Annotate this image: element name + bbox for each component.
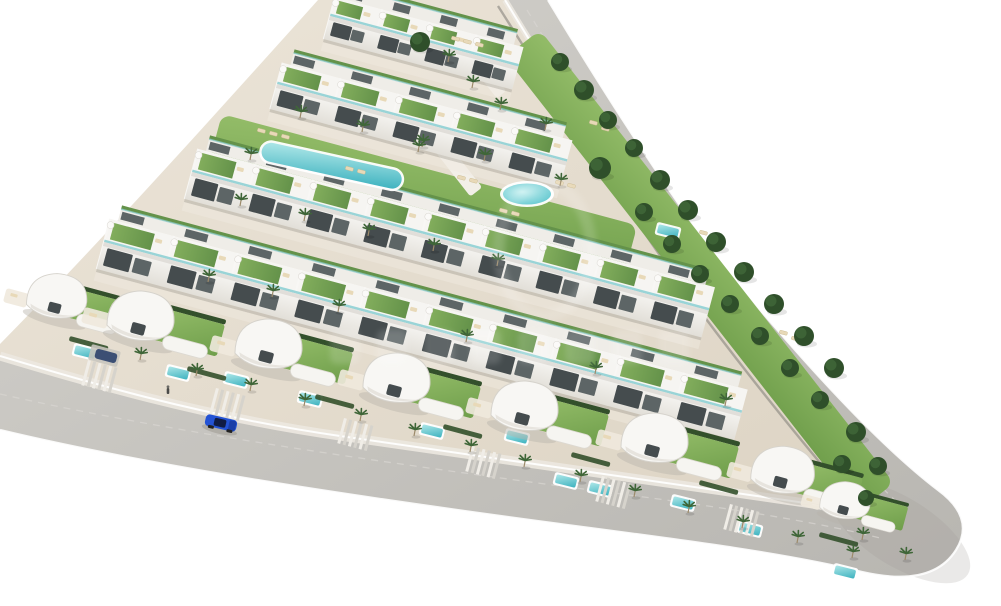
tree-highlight [766,296,777,307]
development-aerial-render: Aerial 3D architectural render of a tria… [0,0,1001,606]
tree-highlight [576,82,587,93]
tree-highlight [552,54,562,64]
tree-highlight [636,204,646,214]
watermark-letterform [565,330,595,364]
palm-shadow [632,496,641,499]
watermark-letterform [659,330,689,364]
tree-highlight [848,424,859,435]
villa-terrace [3,288,29,308]
palm-shadow [336,311,345,314]
tree-highlight [782,360,792,370]
palm-shadow [686,512,695,515]
palm-shadow [903,559,912,562]
palm-shadow [298,117,307,120]
tree-highlight [680,202,691,213]
palm-shadow [578,481,587,484]
tree-highlight [664,236,674,246]
tree-highlight [722,296,732,306]
tree-highlight [752,328,762,338]
palm-shadow [358,420,367,423]
tree-highlight [708,234,719,245]
palm-shadow [860,539,869,542]
pedestrian-head [167,385,170,388]
palm-shadow [302,220,311,223]
watermark-letterform [424,330,454,364]
palm-shadow [194,375,203,378]
tree-highlight [736,264,747,275]
tree-highlight [859,491,868,500]
palm-shadow [206,281,215,284]
palm-shadow [412,435,421,438]
watermark-letterform [612,330,642,364]
tree-highlight [591,159,603,171]
tree-highlight [796,328,807,339]
palm-shadow [468,451,477,454]
pedestrian [167,388,170,394]
palm-shadow [522,466,531,469]
watermark-letterform [330,330,360,364]
palm-shadow [593,373,602,376]
palm-shadow [482,160,491,163]
palm-shadow [740,527,749,530]
tree-highlight [692,266,702,276]
tree-highlight [626,140,636,150]
palm-shadow [238,205,247,208]
palm-shadow [302,405,311,408]
palm-shadow [248,390,257,393]
watermark-letterform [377,330,407,364]
palm-shadow [470,87,479,90]
palm-shadow [543,129,552,132]
watermark-letterform [518,330,548,364]
palm-shadow [270,296,279,299]
palm-shadow [416,151,425,154]
palm-shadow [248,159,257,162]
tree-highlight [600,112,610,122]
palm-shadow [723,405,732,408]
palm-shadow [795,542,804,545]
tree-highlight [412,34,423,45]
tree-highlight [826,360,837,371]
aerial-render-stage: Aerial 3D architectural render of a tria… [0,0,1001,606]
palm-shadow [366,235,375,238]
palm-shadow [360,131,369,134]
watermark-letterform [471,330,501,364]
palm-shadow [420,146,429,149]
tree-highlight [870,458,880,468]
tree-highlight [834,456,844,466]
palm-shadow [138,359,147,362]
palm-shadow [498,109,507,112]
palm-shadow [431,250,440,253]
palm-shadow [446,61,455,64]
palm-shadow [850,557,859,560]
tree-highlight [812,392,822,402]
tree-highlight [652,172,663,183]
